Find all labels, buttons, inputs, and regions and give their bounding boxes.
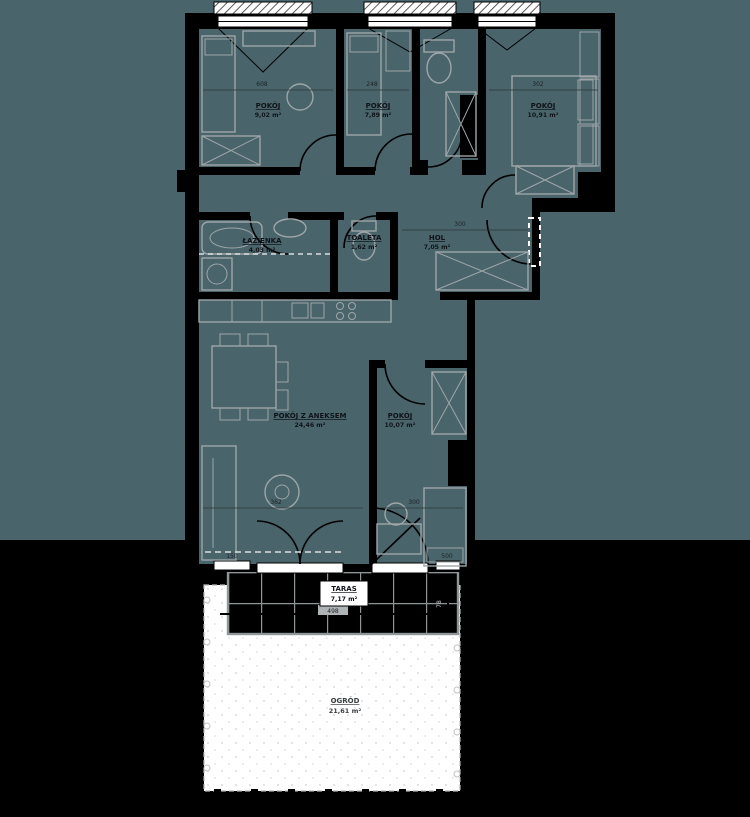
label-toilet: TOALETA (347, 234, 382, 242)
terrace-door (372, 563, 428, 573)
balcony-door (257, 563, 343, 573)
garden-area-value: 21,61 m² (329, 707, 362, 715)
dim-room4: 300 (408, 499, 420, 506)
area-room2: 7,89 m² (365, 112, 392, 119)
window-bottom-1 (214, 561, 250, 570)
floor-hall (398, 175, 532, 292)
area-living: 24,46 m² (295, 422, 326, 429)
awning-2 (364, 2, 456, 14)
label-hall: HOL (429, 234, 446, 242)
area-hall: 7,05 m² (424, 244, 451, 251)
label-room2: POKÓJ (366, 101, 391, 110)
floor-plan-page: OGRÓD 21,61 m² 498 78 TARAS 7,17 m² (0, 0, 750, 817)
dim-room3: 302 (532, 81, 544, 88)
dim-room1: 608 (256, 81, 268, 88)
area-room4: 10,07 m² (385, 422, 416, 429)
terrace-area-value: 7,17 m² (331, 596, 358, 603)
label-bathroom: ŁAZIENKA (241, 237, 282, 245)
shaft-room3 (578, 172, 601, 198)
floor-room1 (199, 29, 336, 167)
terrace-depth-dim: 78 (436, 600, 443, 608)
dim-sofa: 150 (226, 553, 238, 560)
area-bathroom: 4,03 m² (249, 247, 276, 254)
awning-1 (214, 2, 312, 14)
terrace-width-dim: 498 (327, 608, 339, 615)
floor-bathroom (199, 220, 330, 292)
label-room3: POKÓJ (531, 101, 556, 110)
area-room3: 10,91 m² (528, 112, 559, 119)
area-room1: 9,02 m² (255, 112, 282, 119)
shaft-room4 (448, 440, 467, 486)
floor-living (199, 300, 467, 564)
label-room1: POKÓJ (256, 101, 281, 110)
dim-room2: 248 (366, 81, 378, 88)
dim-bed: 500 (441, 553, 453, 560)
dim-hall: 300 (454, 221, 466, 228)
terrace-label: TARAS (331, 585, 357, 593)
area-toilet: 1,62 m² (351, 244, 378, 251)
label-living: POKÓJ Z ANEKSEM (274, 411, 347, 420)
garden-label: OGRÓD (331, 696, 360, 705)
floor-plan-drawing: OGRÓD 21,61 m² 498 78 TARAS 7,17 m² (0, 0, 750, 817)
label-room4: POKÓJ (388, 411, 413, 420)
awning-3 (474, 2, 540, 14)
terrace-area: 498 78 TARAS 7,17 m² (220, 572, 458, 634)
dim-living: 362 (270, 499, 282, 506)
wall-notch (177, 170, 186, 192)
